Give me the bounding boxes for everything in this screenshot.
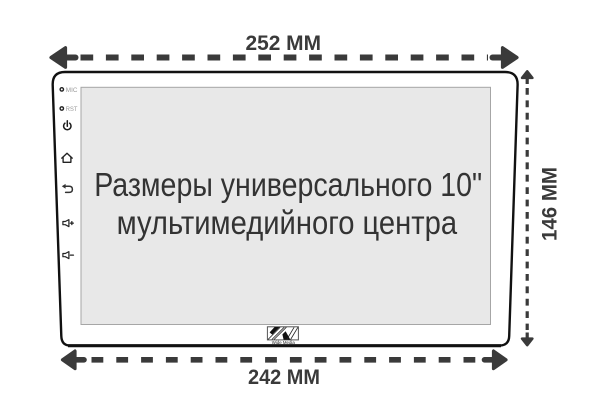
svg-text:146 MM: 146 MM: [538, 167, 562, 241]
svg-text:Wide Media: Wide Media: [272, 340, 295, 345]
svg-text:RST: RST: [66, 106, 78, 113]
svg-text:мультимедийного центра: мультимедийного центра: [117, 204, 458, 241]
svg-text:242 MM: 242 MM: [248, 365, 320, 389]
svg-text:252 MM: 252 MM: [246, 31, 322, 55]
svg-text:MIC: MIC: [66, 87, 78, 94]
svg-text:Размеры универсального 10": Размеры универсального 10": [94, 166, 482, 203]
